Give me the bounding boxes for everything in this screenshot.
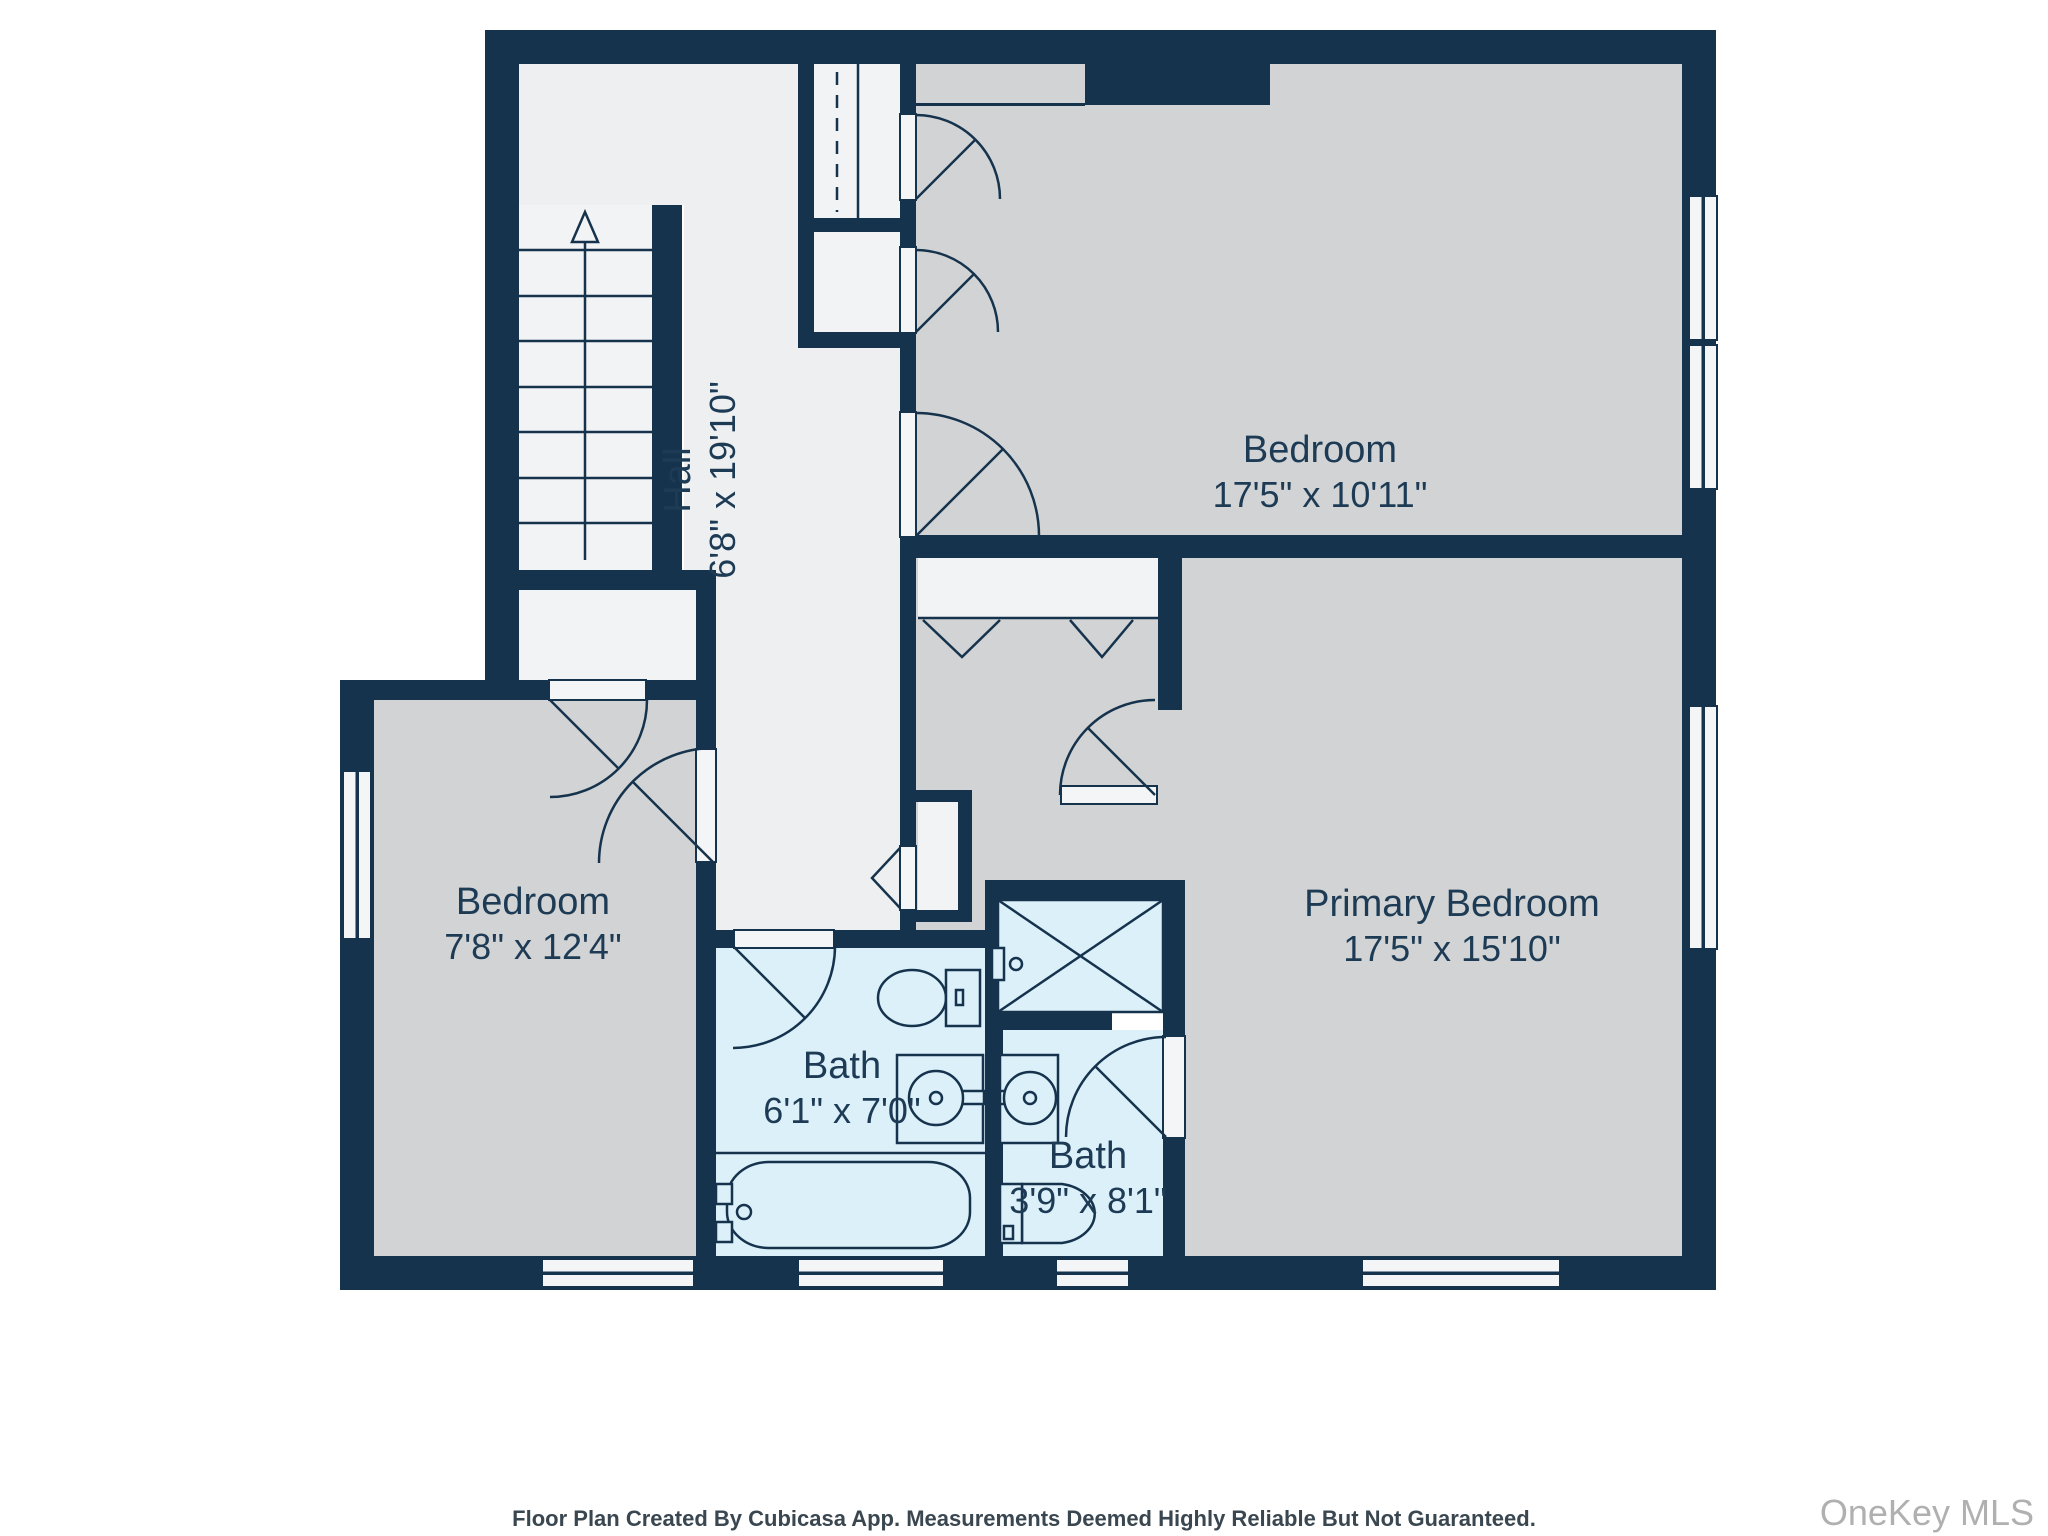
room-label-bath-main: Bath 6'1" x 7'0"	[763, 1043, 920, 1133]
closet-rod	[837, 64, 858, 218]
room-name: Hall	[655, 381, 701, 578]
toilet-fixture	[878, 970, 980, 1026]
room-dims: 17'5" x 10'11"	[1213, 473, 1428, 517]
floor-plan: Hall 6'8" x 19'10" Bedroom 17'5" x 10'11…	[0, 0, 2048, 1536]
room-label-primary-bedroom: Primary Bedroom 17'5" x 15'10"	[1304, 881, 1600, 971]
room-name: Bedroom	[1213, 427, 1428, 473]
room-name: Bath	[1009, 1133, 1166, 1179]
room-dims: 3'9" x 8'1"	[1009, 1179, 1166, 1223]
room-dims: 7'8" x 12'4"	[444, 925, 621, 969]
disclaimer-text: Floor Plan Created By Cubicasa App. Meas…	[0, 1506, 2048, 1532]
bathtub-fixture	[716, 1153, 985, 1248]
room-dims: 6'8" x 19'10"	[701, 381, 745, 578]
room-name: Bath	[763, 1043, 920, 1089]
shower-fixture	[992, 900, 1163, 1012]
room-dims: 6'1" x 7'0"	[763, 1089, 920, 1133]
room-label-bedroom-top: Bedroom 17'5" x 10'11"	[1213, 427, 1428, 517]
room-label-hall: Hall 6'8" x 19'10"	[655, 381, 745, 578]
sink-fixture	[1000, 1055, 1058, 1143]
watermark-text: OneKey MLS	[1820, 1492, 2034, 1534]
room-name: Primary Bedroom	[1304, 881, 1600, 927]
room-label-bedroom-left: Bedroom 7'8" x 12'4"	[444, 879, 621, 969]
room-name: Bedroom	[444, 879, 621, 925]
plan-symbols	[0, 0, 2048, 1536]
bifold-door	[872, 618, 1158, 908]
room-label-bath-ensuite: Bath 3'9" x 8'1"	[1009, 1133, 1166, 1223]
room-dims: 17'5" x 15'10"	[1304, 927, 1600, 971]
